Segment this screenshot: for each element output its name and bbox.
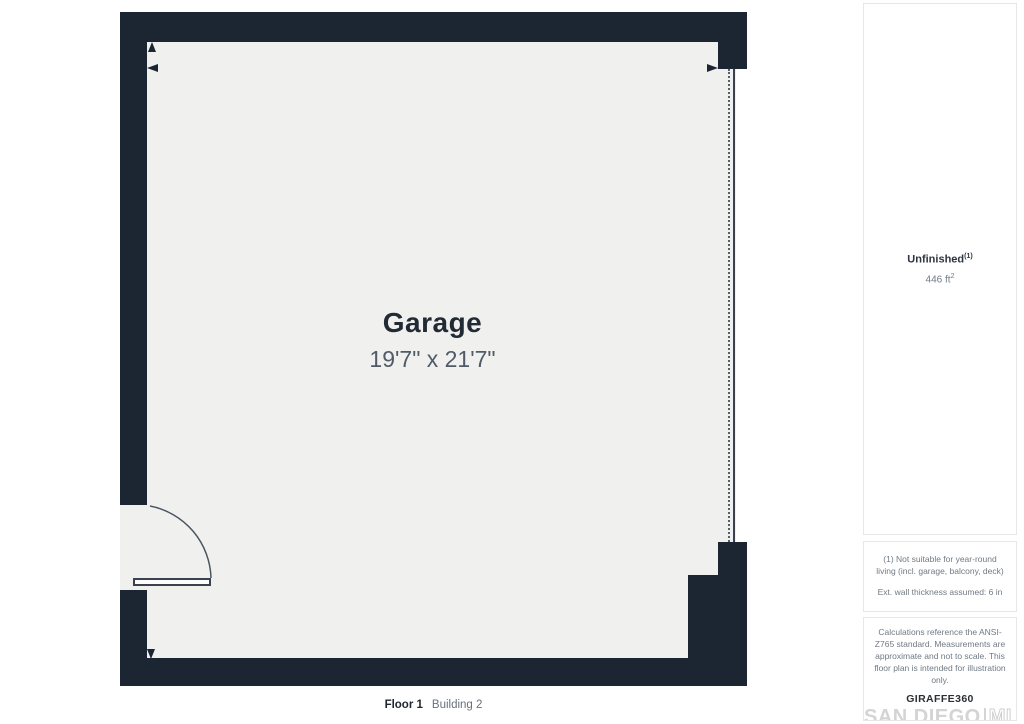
garage-door-dashed-line <box>728 69 730 542</box>
legal-box: Calculations reference the ANSI-Z765 sta… <box>863 617 1017 721</box>
area-summary-box: Unfinished(1) 446 ft2 <box>863 3 1017 535</box>
plan-caption: Floor 1Building 2 <box>120 699 747 711</box>
exterior-gap <box>736 69 747 542</box>
area-value: 446 ft2 <box>926 273 955 285</box>
footnote-reference: (1) <box>964 253 973 260</box>
floor-plan: Garage 19'7" x 21'7" <box>120 12 747 686</box>
dimension-arrow-left-icon <box>147 64 158 72</box>
summary-sidebar: Unfinished(1) 446 ft2 (1) Not suitable f… <box>863 3 1017 721</box>
room-dimensions: 19'7" x 21'7" <box>147 346 718 373</box>
dimension-arrow-up-icon <box>148 42 156 52</box>
mls-suffix: MLS <box>989 706 1017 721</box>
mls-name: SAN DIEGO <box>864 706 981 721</box>
floor-label: Floor 1 <box>385 699 423 711</box>
dimension-arrow-right-icon <box>707 64 718 72</box>
garage-door-line <box>733 69 735 542</box>
notes-box: (1) Not suitable for year-round living (… <box>863 541 1017 612</box>
note-wall-thickness: Ext. wall thickness assumed: 6 in <box>874 587 1006 599</box>
room-label: Garage 19'7" x 21'7" <box>147 307 718 373</box>
building-label: Building 2 <box>432 699 483 711</box>
san-diego-mls-logo: SAN DIEGOMLS <box>864 706 1016 721</box>
dimension-arrow-down-icon <box>147 649 155 659</box>
wall-step-block <box>688 575 747 658</box>
giraffe360-logo: GIRAFFE360 <box>864 693 1016 705</box>
disclaimer-text: Calculations reference the ANSI-Z765 sta… <box>873 627 1007 686</box>
note-suitability: (1) Not suitable for year-round living (… <box>874 554 1006 578</box>
mls-separator <box>984 708 986 721</box>
room-name: Garage <box>147 307 718 339</box>
door-leaf <box>133 578 211 586</box>
area-type-label: Unfinished(1) <box>907 253 972 266</box>
